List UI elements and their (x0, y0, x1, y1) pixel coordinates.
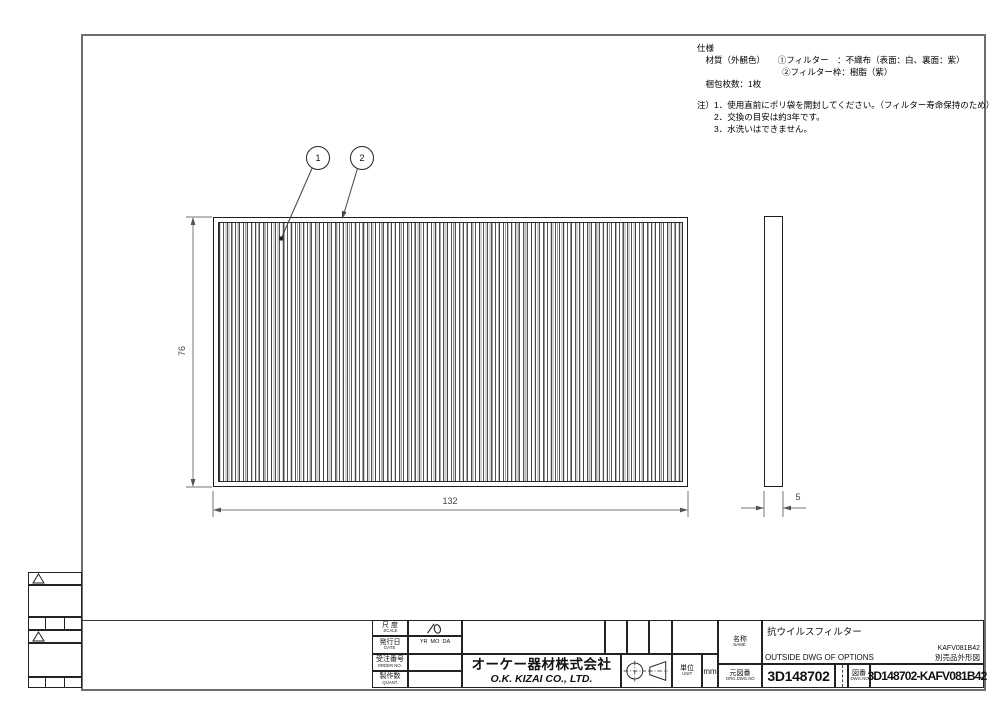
unit-label: 単位 UNIT (672, 654, 702, 688)
spec-title: 仕様 (697, 42, 994, 54)
filter-side-view (764, 216, 783, 487)
revision-block-2-cells (28, 677, 82, 688)
revision-block-2-mark-row (28, 630, 82, 643)
scale-label: 尺 度 SCALE (372, 620, 408, 636)
spec-note-1: 注）1．使用直前にポリ袋を開封してください。（フィルター寿命保持のため） (697, 99, 994, 111)
order-no-value (408, 654, 462, 671)
dim-width-label: 132 (430, 496, 470, 506)
unit-value: mm (702, 654, 718, 688)
part-code-jp: 別売品外形図 (935, 654, 980, 663)
empty-cell (627, 620, 649, 654)
dim-thickness-label: 5 (790, 492, 806, 502)
third-angle-projection-icon (622, 656, 671, 686)
balloon-1: 1 (306, 146, 330, 170)
revision-block-2-body (28, 643, 82, 677)
spec-material-1: 材質（外観色） ①フィルター ：不織布（表面：白、裏面：紫） (697, 54, 994, 66)
spec-notes: 仕様 材質（外観色） ①フィルター ：不織布（表面：白、裏面：紫） ②フィルター… (697, 42, 994, 135)
balloon-1-label: 1 (315, 153, 320, 163)
projection-symbol-cell (621, 654, 672, 688)
company-name-en: O.K. KIZAI CO., LTD. (491, 673, 593, 685)
name-value-cell: 抗ウイルスフィルター OUTSIDE DWG OF OPTIONS KAFV08… (762, 620, 984, 664)
drawing-sheet: 仕様 材質（外観色） ①フィルター ：不織布（表面：白、裏面：紫） ②フィルター… (0, 0, 1000, 707)
dwg-no-spacer-cell (835, 664, 848, 688)
spec-material-2: ②フィルター枠：樹脂（紫） (697, 66, 994, 78)
revision-triangle-icon (32, 631, 45, 642)
spec-note-3: 3．水洗いはできません。 (697, 123, 994, 135)
filter-pleated-media (218, 222, 683, 482)
date-label: 発行日 DATE (372, 636, 408, 654)
scale-value (408, 620, 462, 636)
empty-cell (462, 620, 605, 654)
empty-cell (605, 620, 627, 654)
org-dwg-no-label: 元図番 ORG.DWG.NO (718, 664, 762, 688)
quantity-label: 製作数 QUANT. (372, 671, 408, 688)
empty-cell (672, 620, 718, 654)
quantity-value (408, 671, 462, 688)
revision-block-1-mark-row (28, 572, 82, 585)
part-name: 抗ウイルスフィルター (767, 624, 862, 638)
order-no-label: 受注番号 ORDER NO. (372, 654, 408, 671)
name-label: 名称 NAME (718, 620, 762, 664)
revision-block-1-body (28, 585, 82, 617)
part-codes: KAFV081B42 別売品外形図 (935, 645, 980, 662)
spec-note-2: 2．交換の目安は約3年です。 (697, 111, 994, 123)
balloon-2-label: 2 (359, 153, 364, 163)
company-name-jp: オーケー器材株式会社 (472, 657, 612, 673)
spec-packing: 梱包枚数：1枚 (697, 78, 994, 90)
subtitle-en: OUTSIDE DWG OF OPTIONS (765, 653, 874, 662)
date-value: YR MO DA (408, 636, 462, 654)
dwg-no-value: 3D148702-KAFV081B42 (870, 664, 984, 688)
company-name-cell: オーケー器材株式会社 O.K. KIZAI CO., LTD. (462, 654, 621, 688)
scale-mark-icon (423, 621, 447, 636)
dim-height-label: 76 (177, 337, 187, 365)
empty-cell (649, 620, 672, 654)
org-dwg-no-value: 3D148702 (762, 664, 835, 688)
balloon-2: 2 (350, 146, 374, 170)
revision-block-1-cells (28, 617, 82, 630)
revision-triangle-icon (32, 573, 45, 584)
spacer-dashed-line (842, 665, 843, 687)
